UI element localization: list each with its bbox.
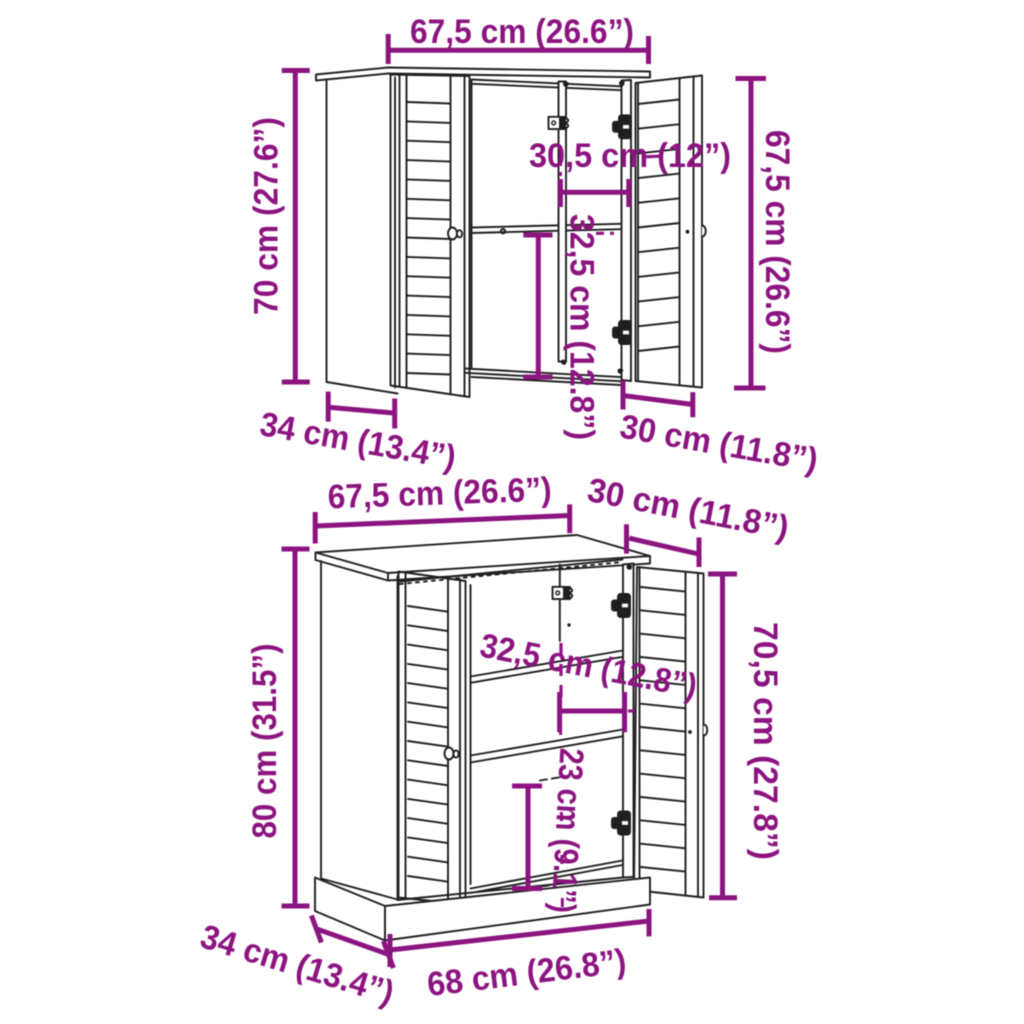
svg-text:70 cm (27.6”): 70 cm (27.6”) [248, 117, 286, 315]
svg-text:30,5 cm (12”): 30,5 cm (12”) [529, 137, 731, 175]
svg-text:32,5 cm (12.8”): 32,5 cm (12.8”) [563, 214, 601, 440]
svg-text:67,5 cm (26.6”): 67,5 cm (26.6”) [758, 130, 796, 354]
svg-text:67,5 cm (26.6”): 67,5 cm (26.6”) [410, 13, 634, 51]
svg-text:70,5 cm (27.8”): 70,5 cm (27.8”) [746, 622, 784, 860]
svg-text:67,5 cm (26.6”): 67,5 cm (26.6”) [327, 471, 552, 517]
svg-text:80 cm (31.5”): 80 cm (31.5”) [246, 644, 284, 839]
